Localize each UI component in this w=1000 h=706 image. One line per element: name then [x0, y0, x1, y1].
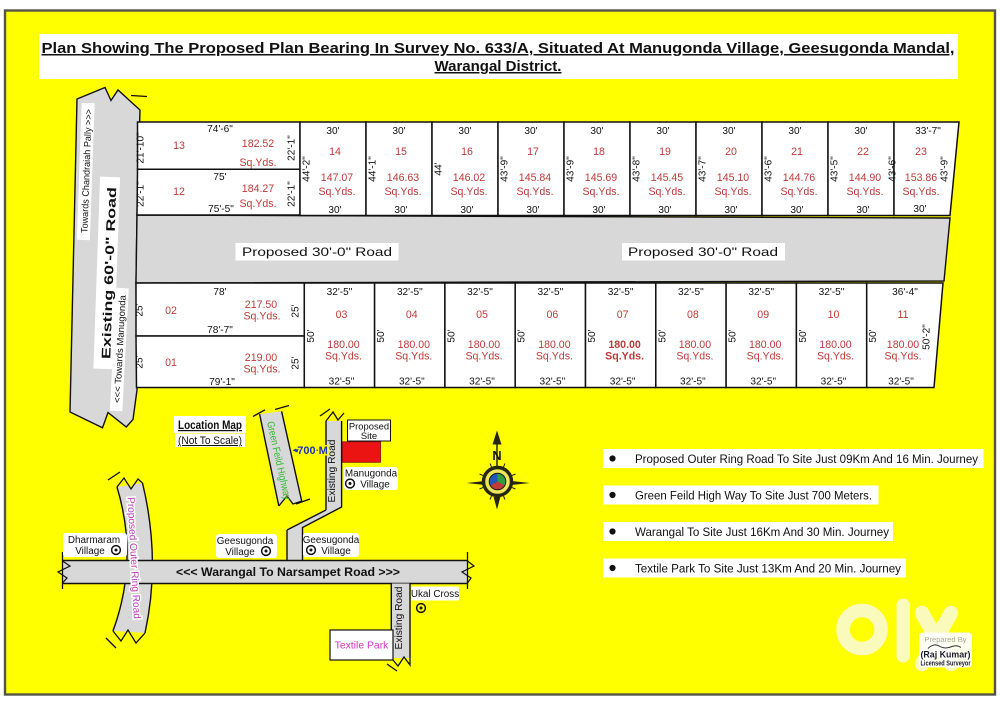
svg-text:700 M: 700 M [297, 445, 328, 457]
svg-text:Ukal Cross: Ukal Cross [411, 589, 459, 600]
svg-text:Sq.Yds.: Sq.Yds. [239, 157, 276, 169]
svg-text:Sq.Yds.: Sq.Yds. [536, 351, 573, 363]
svg-text:30': 30' [790, 205, 803, 216]
svg-text:Sq.Yds.: Sq.Yds. [516, 186, 553, 198]
svg-text:Prepared By: Prepared By [924, 635, 966, 644]
svg-text:22'-1": 22'-1" [287, 135, 298, 161]
svg-text:43'-6": 43'-6" [764, 156, 775, 182]
svg-text:Proposed 30'-0" Road: Proposed 30'-0" Road [628, 245, 778, 259]
svg-text:30': 30' [394, 205, 407, 216]
svg-text:30': 30' [526, 205, 539, 216]
svg-text:Geesugonda: Geesugonda [303, 535, 360, 546]
svg-text:145.69: 145.69 [585, 172, 618, 184]
svg-text:N: N [492, 448, 501, 463]
svg-text:30': 30' [328, 205, 341, 216]
svg-text:75'-5": 75'-5" [208, 204, 234, 215]
svg-text:21'-10": 21'-10" [136, 132, 147, 164]
svg-text:Sq.Yds.: Sq.Yds. [817, 351, 854, 363]
svg-text:Sq.Yds.: Sq.Yds. [243, 364, 280, 376]
svg-text:217.50: 217.50 [245, 299, 278, 311]
svg-text:50': 50' [446, 329, 457, 342]
svg-text:Sq.Yds.: Sq.Yds. [395, 351, 432, 363]
svg-text:22'-1": 22'-1" [287, 181, 298, 207]
svg-text:44': 44' [434, 162, 445, 175]
svg-text:180.00: 180.00 [468, 339, 501, 351]
svg-text:50': 50' [728, 329, 739, 342]
svg-text:32'-5": 32'-5" [610, 377, 636, 388]
svg-text:50': 50' [657, 329, 668, 342]
svg-text:18: 18 [593, 146, 605, 158]
svg-text:Sq.Yds.: Sq.Yds. [582, 186, 619, 198]
svg-text:15: 15 [395, 146, 407, 158]
svg-text:Proposed Outer Ring Road To Si: Proposed Outer Ring Road To Site Just 09… [635, 452, 979, 466]
svg-text:44'-1": 44'-1" [368, 156, 379, 182]
svg-text:180.00: 180.00 [819, 339, 852, 351]
svg-text:32'-5": 32'-5" [469, 377, 495, 388]
svg-text:50': 50' [868, 329, 879, 342]
svg-text:Sq.Yds.: Sq.Yds. [780, 186, 817, 198]
svg-text:09: 09 [757, 309, 769, 321]
svg-text:Dharmaram: Dharmaram [68, 535, 120, 546]
svg-text:(Not To Scale): (Not To Scale) [178, 435, 242, 447]
svg-text:180.00: 180.00 [887, 339, 920, 351]
svg-text:17: 17 [527, 146, 539, 158]
svg-text:44'-2": 44'-2" [302, 156, 313, 182]
svg-text:Village: Village [321, 546, 351, 557]
svg-text:30': 30' [458, 126, 471, 137]
svg-text:30': 30' [658, 205, 671, 216]
svg-text:50': 50' [376, 329, 387, 342]
svg-text:30': 30' [913, 204, 926, 215]
svg-text:43'-7": 43'-7" [698, 156, 709, 182]
svg-text:21: 21 [791, 146, 803, 158]
svg-text:182.52: 182.52 [242, 138, 275, 150]
svg-text:30': 30' [722, 126, 735, 137]
svg-text:43'-9": 43'-9" [500, 156, 511, 182]
svg-text:07: 07 [617, 309, 629, 321]
svg-text:16: 16 [461, 146, 473, 158]
svg-text:25': 25' [291, 304, 302, 317]
svg-text:43'-8": 43'-8" [632, 156, 643, 182]
svg-text:04: 04 [406, 309, 418, 321]
svg-text:184.27: 184.27 [242, 183, 275, 195]
svg-text:30': 30' [392, 126, 405, 137]
svg-text:Village: Village [75, 546, 105, 557]
svg-text:30': 30' [524, 126, 537, 137]
svg-text:03: 03 [336, 309, 348, 321]
svg-text:Sq.Yds.: Sq.Yds. [714, 186, 751, 198]
svg-text:219.00: 219.00 [245, 352, 278, 364]
svg-text:06: 06 [547, 309, 559, 321]
svg-text:32'-5": 32'-5" [608, 287, 634, 298]
svg-text:30': 30' [724, 205, 737, 216]
svg-text:32'-5": 32'-5" [678, 287, 704, 298]
svg-text:32'-5": 32'-5" [397, 287, 423, 298]
svg-text:22'-1": 22'-1" [136, 181, 147, 207]
svg-text:153.86: 153.86 [905, 172, 938, 184]
svg-text:146.63: 146.63 [387, 172, 420, 184]
svg-text:30': 30' [788, 126, 801, 137]
svg-text:25': 25' [135, 355, 146, 368]
svg-text:43'-9": 43'-9" [566, 156, 577, 182]
svg-text:Sq.Yds.: Sq.Yds. [239, 198, 276, 210]
svg-text:22: 22 [857, 146, 869, 158]
svg-text:Sq.Yds.: Sq.Yds. [243, 311, 280, 323]
svg-text:Licensed Surveyor: Licensed Surveyor [921, 659, 971, 668]
svg-text:32'-5": 32'-5" [819, 287, 845, 298]
svg-text:30': 30' [656, 126, 669, 137]
svg-text:32'-5": 32'-5" [329, 377, 355, 388]
svg-text:50': 50' [798, 329, 809, 342]
svg-text:10: 10 [828, 309, 840, 321]
svg-text:78': 78' [213, 287, 226, 298]
svg-text:Sq.Yds.: Sq.Yds. [884, 351, 921, 363]
svg-text:74'-6": 74'-6" [207, 124, 233, 135]
svg-text:13: 13 [173, 140, 185, 152]
svg-text:01: 01 [165, 357, 177, 369]
svg-text:25': 25' [291, 356, 302, 369]
svg-text:Green Feild High Way To Site J: Green Feild High Way To Site Just 700 Me… [635, 488, 872, 502]
svg-text:146.02: 146.02 [453, 172, 486, 184]
svg-text:Warangal To Site Just 16Km And: Warangal To Site Just 16Km And 30 Min. J… [635, 525, 890, 539]
svg-text:Proposed 30'-0" Road: Proposed 30'-0" Road [242, 245, 392, 259]
svg-text:144.90: 144.90 [849, 172, 882, 184]
svg-text:32'-5": 32'-5" [888, 377, 914, 388]
svg-text:32'-5": 32'-5" [467, 287, 493, 298]
svg-text:Sq.Yds.: Sq.Yds. [605, 351, 644, 363]
svg-text:32'-5": 32'-5" [821, 377, 847, 388]
svg-text:Existing Road: Existing Road [327, 439, 338, 502]
svg-text:Village: Village [225, 547, 255, 558]
svg-text:32'-5": 32'-5" [540, 377, 566, 388]
svg-text:43'-6": 43'-6" [888, 156, 899, 182]
svg-text:30': 30' [854, 126, 867, 137]
svg-text:36'-4": 36'-4" [892, 287, 918, 298]
svg-text:30': 30' [460, 205, 473, 216]
svg-text:144.76: 144.76 [783, 172, 816, 184]
svg-text:180.00: 180.00 [608, 339, 641, 351]
svg-text:50': 50' [587, 329, 598, 342]
svg-text:78'-7": 78'-7" [207, 325, 233, 336]
svg-text:33'-7": 33'-7" [915, 126, 941, 137]
svg-text:180.00: 180.00 [398, 339, 431, 351]
svg-text:75': 75' [213, 172, 226, 183]
svg-text:Site: Site [361, 430, 377, 441]
svg-text:12: 12 [173, 186, 185, 198]
svg-text:180.00: 180.00 [538, 339, 571, 351]
svg-text:Sq.Yds.: Sq.Yds. [648, 186, 685, 198]
svg-text:Sq.Yds.: Sq.Yds. [384, 186, 421, 198]
svg-text:Sq.Yds.: Sq.Yds. [747, 351, 784, 363]
svg-text:Sq.Yds.: Sq.Yds. [465, 351, 502, 363]
svg-text:30': 30' [590, 126, 603, 137]
svg-text:Textile Park To Site Just 13Km: Textile Park To Site Just 13Km And 20 Mi… [635, 561, 902, 575]
svg-text:Manugonda: Manugonda [345, 469, 398, 480]
svg-text:25': 25' [135, 303, 146, 316]
svg-text:32'-5": 32'-5" [399, 377, 425, 388]
svg-text:14: 14 [329, 146, 341, 158]
svg-text:Location Map: Location Map [178, 418, 242, 432]
svg-text:Sq.Yds.: Sq.Yds. [318, 186, 355, 198]
svg-text:43'-9": 43'-9" [940, 156, 951, 182]
svg-text:Sq.Yds.: Sq.Yds. [676, 351, 713, 363]
svg-text:11: 11 [898, 309, 909, 321]
svg-text:180.00: 180.00 [749, 339, 782, 351]
svg-text:180.00: 180.00 [327, 339, 360, 351]
svg-text:23: 23 [915, 146, 927, 158]
svg-text:43'-5": 43'-5" [830, 156, 841, 182]
svg-text:180.00: 180.00 [679, 339, 712, 351]
svg-text:30': 30' [856, 205, 869, 216]
svg-text:79'-1": 79'-1" [209, 377, 235, 388]
svg-text:08: 08 [687, 309, 699, 321]
svg-text:147.07: 147.07 [321, 172, 354, 184]
svg-text:19: 19 [659, 146, 671, 158]
svg-text:Village: Village [360, 480, 390, 491]
svg-text:Plan Showing The Proposed Plan: Plan Showing The Proposed Plan Bearing I… [42, 40, 955, 57]
svg-text:05: 05 [476, 309, 488, 321]
svg-text:32'-5": 32'-5" [680, 377, 706, 388]
svg-text:32'-5": 32'-5" [748, 287, 774, 298]
svg-text:145.84: 145.84 [519, 172, 552, 184]
svg-text:32'-5": 32'-5" [327, 287, 353, 298]
svg-text:20: 20 [725, 146, 737, 158]
svg-text:Sq.Yds.: Sq.Yds. [846, 186, 883, 198]
svg-text:145.10: 145.10 [717, 172, 750, 184]
svg-text:30': 30' [592, 205, 605, 216]
svg-text:145.45: 145.45 [651, 172, 684, 184]
svg-text:Geesugonda: Geesugonda [217, 536, 274, 547]
svg-text:Textile Park: Textile Park [335, 641, 390, 652]
svg-text:32'-5": 32'-5" [538, 287, 564, 298]
svg-text:Sq.Yds.: Sq.Yds. [902, 186, 939, 198]
svg-text:32'-5": 32'-5" [750, 377, 776, 388]
svg-text:50': 50' [517, 329, 528, 342]
svg-text:50'-2": 50'-2" [922, 324, 933, 350]
svg-text:30': 30' [326, 126, 339, 137]
svg-text:Warangal District.: Warangal District. [435, 58, 562, 75]
svg-text:50': 50' [306, 329, 317, 342]
svg-text:Existing Road: Existing Road [394, 586, 405, 649]
svg-text:02: 02 [165, 305, 177, 317]
svg-text:Sq.Yds.: Sq.Yds. [325, 351, 362, 363]
svg-text:Sq.Yds.: Sq.Yds. [450, 186, 487, 198]
svg-text:<<< Warangal To Narsampet Road: <<< Warangal To Narsampet Road >>> [176, 566, 400, 579]
